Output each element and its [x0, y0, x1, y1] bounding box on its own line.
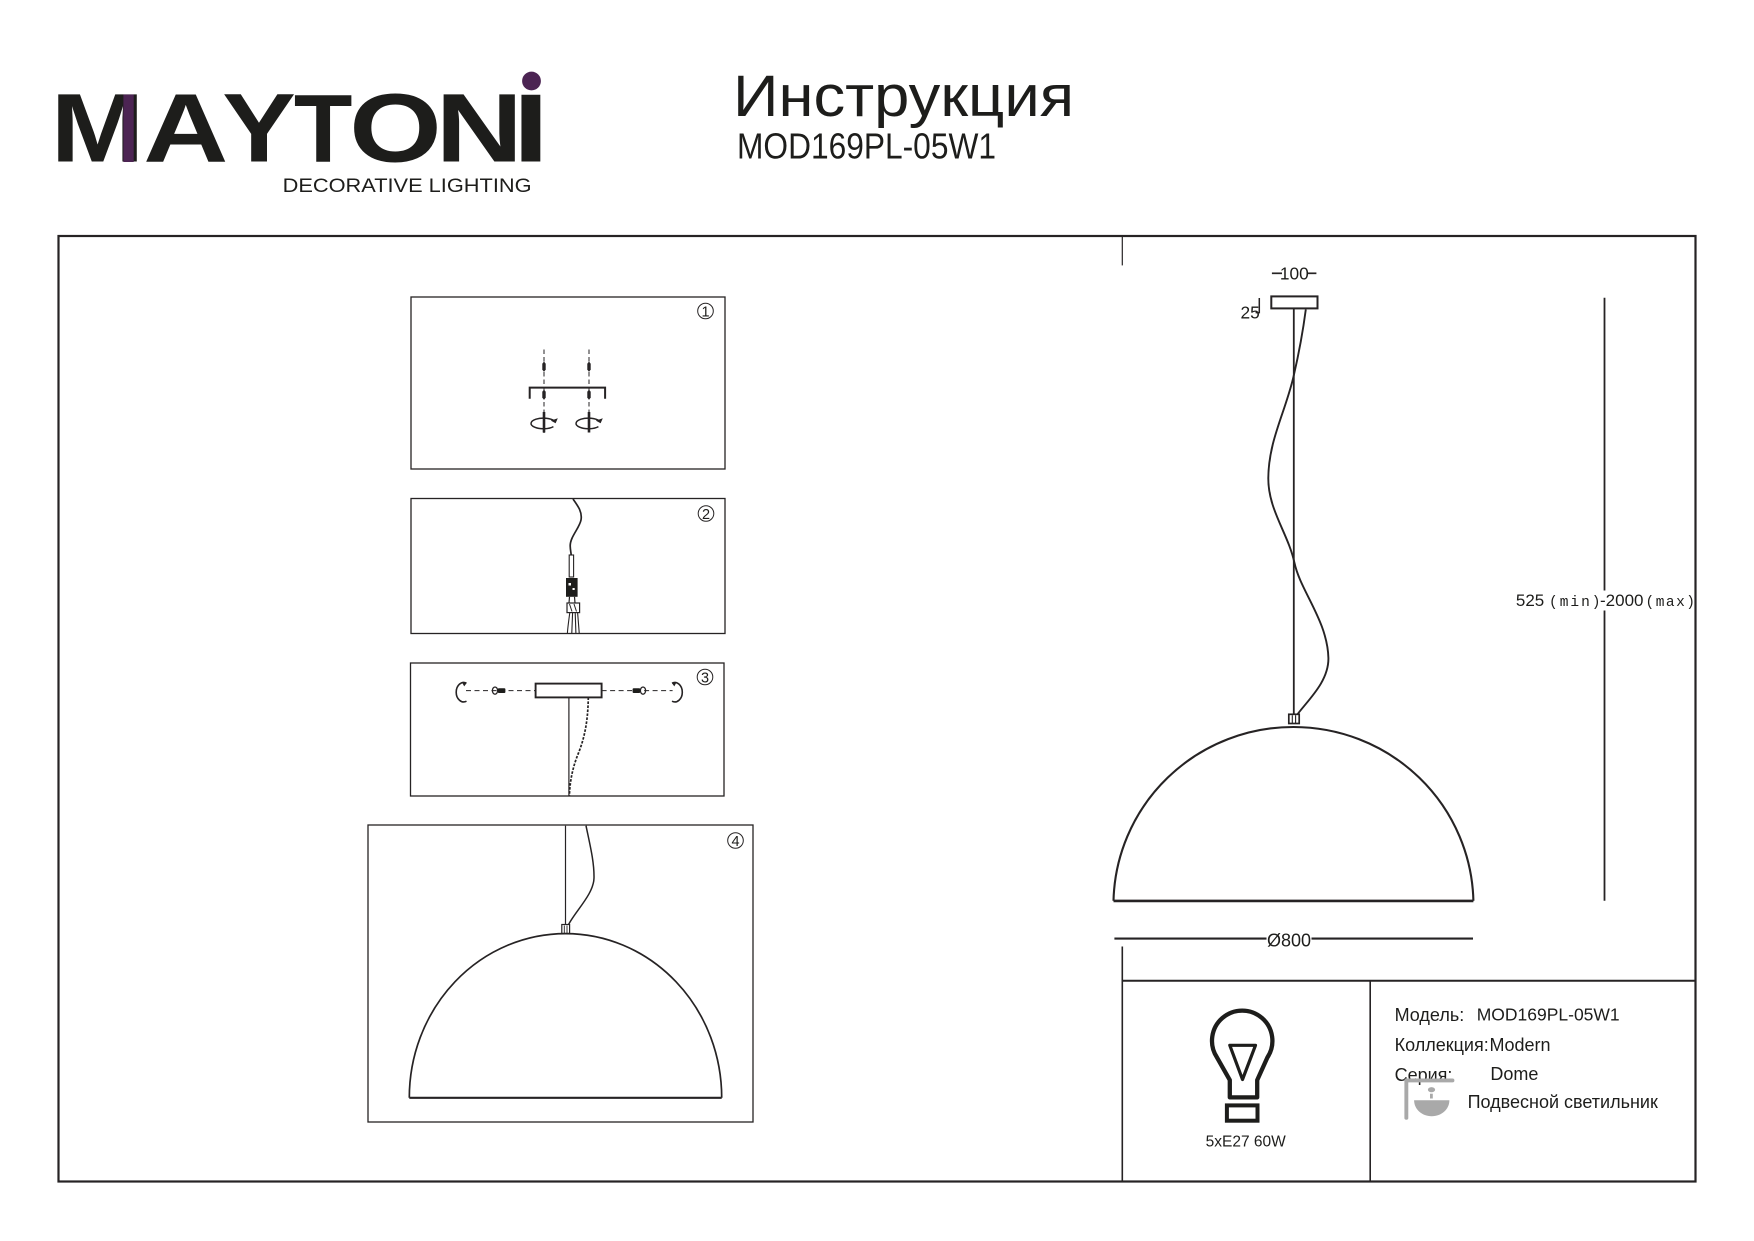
svg-text:O: O	[349, 74, 442, 182]
svg-text:5xE27 60W: 5xE27 60W	[1206, 1133, 1286, 1150]
svg-text:MOD169PL-05W1: MOD169PL-05W1	[1477, 1004, 1620, 1024]
svg-text:Подвесной светильник: Подвесной светильник	[1468, 1092, 1658, 1112]
svg-text:N: N	[436, 75, 523, 183]
svg-text:MOD169PL-05W1: MOD169PL-05W1	[737, 126, 996, 167]
svg-text:Dome: Dome	[1490, 1064, 1538, 1084]
svg-text:T: T	[294, 75, 353, 183]
svg-text:Инструкция: Инструкция	[733, 64, 1074, 129]
svg-text:I: I	[513, 75, 549, 183]
svg-text:525 (min) -2000: 525 (min) -2000 (max)	[1516, 591, 1697, 611]
svg-text:Modern: Modern	[1490, 1035, 1551, 1055]
svg-text:2: 2	[702, 507, 710, 523]
svg-text:Модель:: Модель:	[1395, 1005, 1465, 1025]
svg-text:100: 100	[1280, 263, 1309, 283]
svg-text:Ø800: Ø800	[1267, 930, 1311, 950]
svg-text:Коллекция:: Коллекция:	[1395, 1035, 1489, 1055]
svg-text:A: A	[143, 73, 228, 182]
svg-text:DECORATIVE LIGHTING: DECORATIVE LIGHTING	[283, 176, 532, 197]
svg-text:3: 3	[701, 671, 709, 687]
svg-text:Y: Y	[222, 75, 296, 183]
svg-text:4: 4	[731, 834, 739, 850]
svg-text:1: 1	[701, 305, 709, 321]
